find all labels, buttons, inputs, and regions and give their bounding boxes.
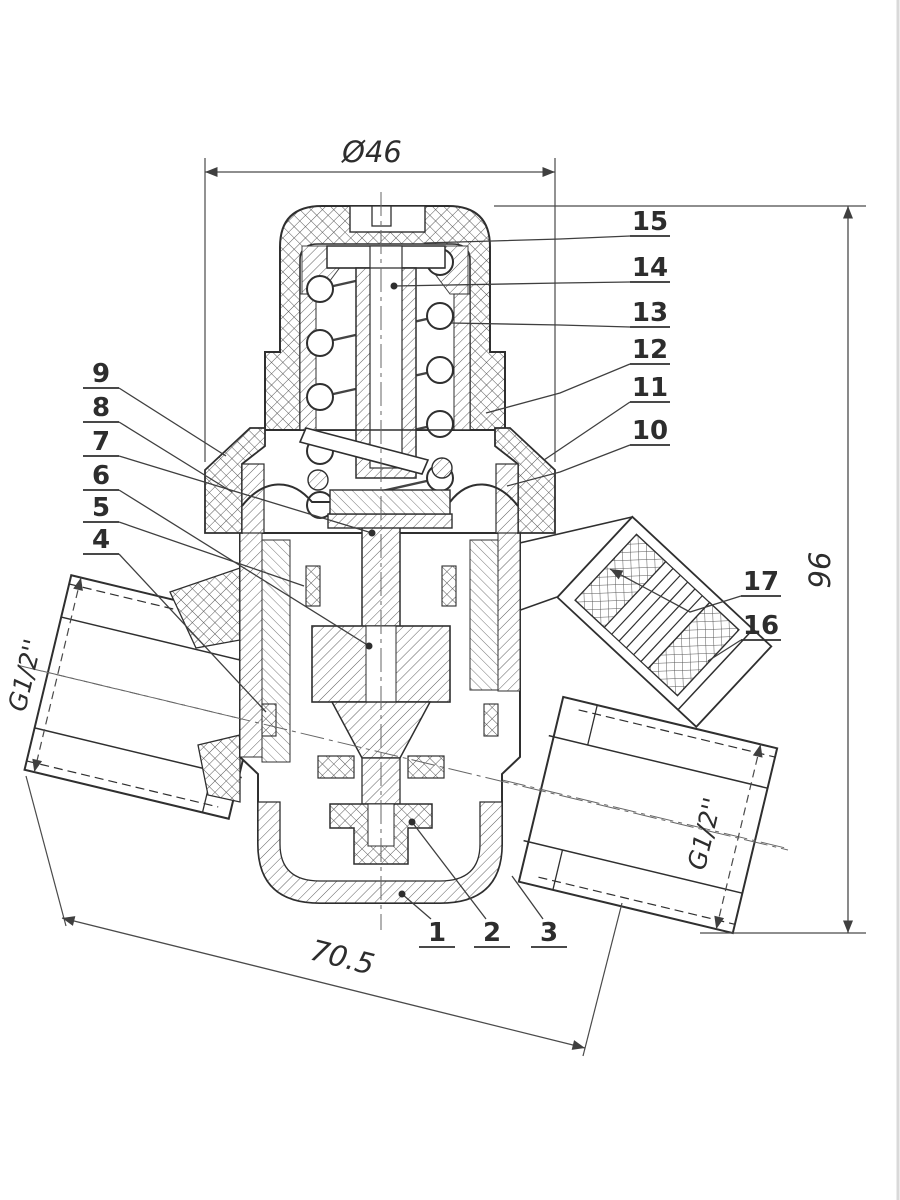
- liner-wall-left: [300, 294, 316, 430]
- oring-lower-right: [484, 704, 498, 736]
- callout-4-number: 4: [92, 525, 110, 555]
- callout-14-number: 14: [632, 253, 668, 283]
- overall-height-label: 96: [803, 552, 837, 589]
- callout-11-number: 11: [632, 373, 668, 403]
- callout-8-leader: [119, 422, 232, 492]
- callout-16-number: 16: [743, 611, 779, 641]
- callout-12-number: 12: [632, 335, 668, 365]
- callout-3-number: 3: [540, 918, 558, 948]
- ext-line-right: [583, 903, 622, 1056]
- screw-slot-bore: [370, 246, 402, 468]
- oring-upper-right: [442, 566, 456, 606]
- diaphragm-clamp-plate: [330, 490, 450, 514]
- filter-boss: [557, 517, 771, 727]
- liner-wall-right: [454, 294, 470, 430]
- spring-coil: [427, 411, 453, 437]
- oring-upper-left: [306, 566, 320, 606]
- right-port: G1/2'': [480, 688, 806, 940]
- spring-coil: [427, 303, 453, 329]
- technical-drawing-page: G1/2'' G1/2'': [0, 0, 900, 1200]
- cap-diameter-label: Ø46: [341, 135, 402, 169]
- body-sleeve-right: [470, 540, 498, 690]
- lever-pivot-left: [308, 470, 328, 490]
- spring-coil: [307, 330, 333, 356]
- callout-8-number: 8: [92, 393, 110, 423]
- valve-body: [240, 514, 520, 903]
- callout-7-number: 7: [92, 427, 110, 457]
- callout-2-dot: [409, 819, 416, 826]
- callout-15-number: 15: [632, 207, 668, 237]
- callout-9-leader: [119, 388, 226, 456]
- callout-2-number: 2: [483, 918, 501, 948]
- seat-seal-right: [408, 756, 444, 778]
- callout-6-number: 6: [92, 461, 110, 491]
- body-wall-right: [498, 533, 520, 691]
- right-port-body: [519, 697, 777, 933]
- callout-10-number: 10: [632, 416, 668, 446]
- spring-coil: [427, 357, 453, 383]
- callout-9-number: 9: [92, 359, 110, 389]
- spring-cap: [265, 206, 505, 528]
- ext-line-left: [26, 776, 66, 926]
- seat-seal-left: [318, 756, 354, 778]
- oring-lower-left: [262, 704, 276, 736]
- spring-coil: [307, 384, 333, 410]
- bonnet-ring-right: [496, 464, 518, 533]
- spring-coil: [307, 276, 333, 302]
- overall-width-label: 70.5: [307, 933, 378, 982]
- valve-cross-section-drawing: G1/2'' G1/2'': [0, 0, 900, 1200]
- callout-1-number: 1: [428, 918, 446, 948]
- callout-1-dot: [399, 891, 406, 898]
- callout-11-leader: [544, 402, 630, 460]
- callout-7-dot: [369, 530, 376, 537]
- callout-12-leader: [486, 364, 630, 413]
- callout-17-number: 17: [743, 567, 779, 597]
- lever-pivot-right: [432, 458, 452, 478]
- callout-13-number: 13: [632, 298, 668, 328]
- callout-6-dot: [366, 643, 373, 650]
- callout-14-dot: [391, 283, 398, 290]
- callout-5-number: 5: [92, 493, 110, 523]
